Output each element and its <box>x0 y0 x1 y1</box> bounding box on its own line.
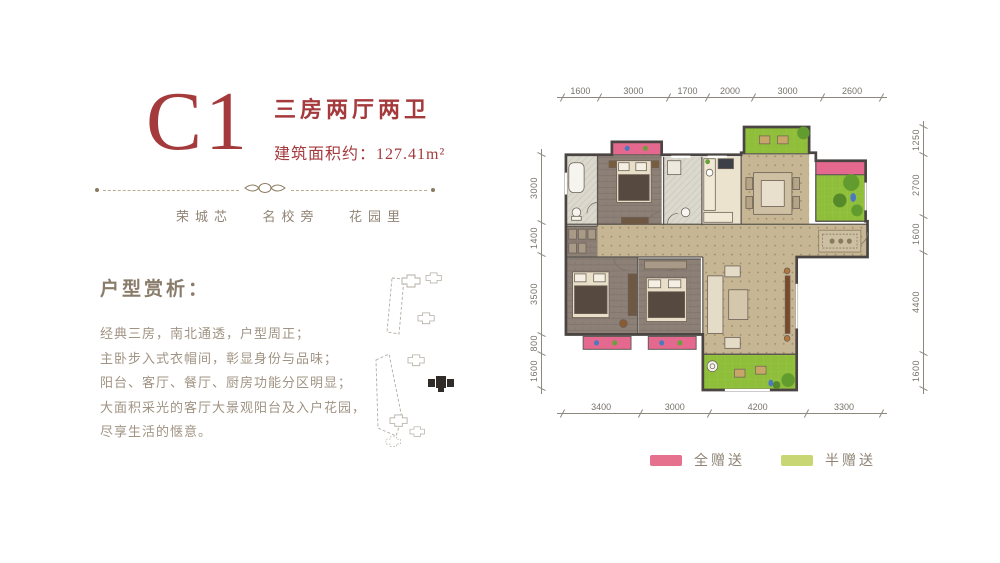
dimension-segment: 3400 <box>562 402 640 418</box>
dimension-segment: 1600 <box>562 86 599 102</box>
analysis-line: 阳台、客厅、餐厅、厨房功能分区明显； <box>100 371 380 396</box>
dimension-value: 1600 <box>911 360 921 382</box>
dimension-segment: 3500 <box>528 254 548 334</box>
dimension-value: 3000 <box>623 86 643 102</box>
brochure-page: C1 三房两厅两卫 建筑面积约：127.41m² 荣城芯名校旁花园里 户型赏析：… <box>0 0 1000 563</box>
unit-type-label: 三房两厅两卫 <box>274 92 445 124</box>
dimension-value: 1600 <box>529 360 539 382</box>
full-gift-bay-bottom-1 <box>583 336 631 349</box>
title-right: 三房两厅两卫 建筑面积约：127.41m² <box>274 80 445 164</box>
dimension-value: 2600 <box>842 86 862 102</box>
dimension-segment: 2600 <box>822 86 882 102</box>
current-building-marker <box>428 376 454 392</box>
dimension-value: 800 <box>529 335 539 352</box>
analysis-heading: 户型赏析： <box>100 274 210 301</box>
dimension-value: 3000 <box>665 402 685 418</box>
tagline-item: 花园里 <box>349 206 406 225</box>
full-gift-bay-top <box>612 142 662 155</box>
divider-dot <box>95 188 99 192</box>
dimension-segment: 1600 <box>910 353 930 389</box>
dimension-segment: 4200 <box>709 402 806 418</box>
divider-dot <box>431 188 435 192</box>
dimension-value: 3400 <box>591 402 611 418</box>
legend-swatch <box>650 455 682 466</box>
legend-item: 全赠送 <box>650 450 745 470</box>
dimension-segment: 1700 <box>668 86 707 102</box>
full-gift-strip-right <box>816 161 866 175</box>
dimension-value: 1600 <box>911 223 921 245</box>
legend-label: 全赠送 <box>694 450 745 470</box>
dimension-value: 4400 <box>911 291 921 313</box>
analysis-line: 主卧步入式衣帽间，彰显身份与品味； <box>100 347 380 372</box>
dimension-value: 2700 <box>911 174 921 196</box>
unit-code: C1 <box>146 80 250 164</box>
dimension-value: 2000 <box>720 86 740 102</box>
title-block: C1 三房两厅两卫 建筑面积约：127.41m² <box>146 80 445 164</box>
divider-ornament-icon <box>243 181 287 200</box>
dimensions-left: 3000140035008001600 <box>528 154 548 389</box>
dimensions-top: 160030001700200030002600 <box>562 86 882 102</box>
dimension-segment: 2000 <box>707 86 753 102</box>
divider-line <box>103 190 239 191</box>
dimension-value: 1600 <box>570 86 590 102</box>
dimension-value: 3000 <box>529 177 539 199</box>
dimension-segment: 3000 <box>528 154 548 222</box>
dimension-segment: 3000 <box>753 86 822 102</box>
dimension-value: 1250 <box>911 129 921 151</box>
dimension-segment: 1600 <box>528 353 548 390</box>
site-plan-thumbnail <box>366 268 468 455</box>
divider-line <box>291 190 427 191</box>
legend: 全赠送半赠送 <box>650 450 876 470</box>
dimension-segment: 3300 <box>806 402 882 418</box>
dimensions-right: 12502700160044001600 <box>910 126 930 389</box>
dimension-value: 4200 <box>748 402 768 418</box>
analysis-line: 经典三房，南北通透，户型周正； <box>100 322 380 347</box>
analysis-line: 尽享生活的惬意。 <box>100 420 380 445</box>
decorative-divider <box>95 182 435 198</box>
dimension-value: 3000 <box>778 86 798 102</box>
legend-swatch <box>781 455 813 466</box>
full-gift-bay-bottom-2 <box>648 336 696 349</box>
legend-item: 半赠送 <box>781 450 876 470</box>
dimension-segment: 800 <box>528 334 548 352</box>
dimension-segment: 1400 <box>528 222 548 254</box>
tagline-item: 荣城芯 <box>176 206 233 225</box>
legend-label: 半赠送 <box>825 450 876 470</box>
analysis-paragraph: 经典三房，南北通透，户型周正；主卧步入式衣帽间，彰显身份与品味；阳台、客厅、餐厅… <box>100 322 380 445</box>
dimension-segment: 1600 <box>910 216 930 252</box>
dimension-segment: 3000 <box>599 86 668 102</box>
dimension-segment: 2700 <box>910 154 930 215</box>
floor-plan <box>564 125 880 398</box>
tagline-item: 名校旁 <box>262 206 319 225</box>
dimensions-bottom: 3400300042003300 <box>562 402 882 418</box>
tagline: 荣城芯名校旁花园里 <box>176 206 406 225</box>
dimension-value: 3300 <box>834 402 854 418</box>
dimension-segment: 4400 <box>910 252 930 352</box>
half-gift-balcony-bottom <box>703 354 797 390</box>
unit-area-label: 建筑面积约：127.41m² <box>274 140 445 164</box>
analysis-line: 大面积采光的客厅大景观阳台及入户花园， <box>100 396 380 421</box>
dimension-segment: 1250 <box>910 126 930 154</box>
dimension-value: 3500 <box>529 283 539 305</box>
dimension-segment: 3000 <box>640 402 709 418</box>
dimension-value: 1400 <box>529 227 539 249</box>
dimension-value: 1700 <box>677 86 697 102</box>
